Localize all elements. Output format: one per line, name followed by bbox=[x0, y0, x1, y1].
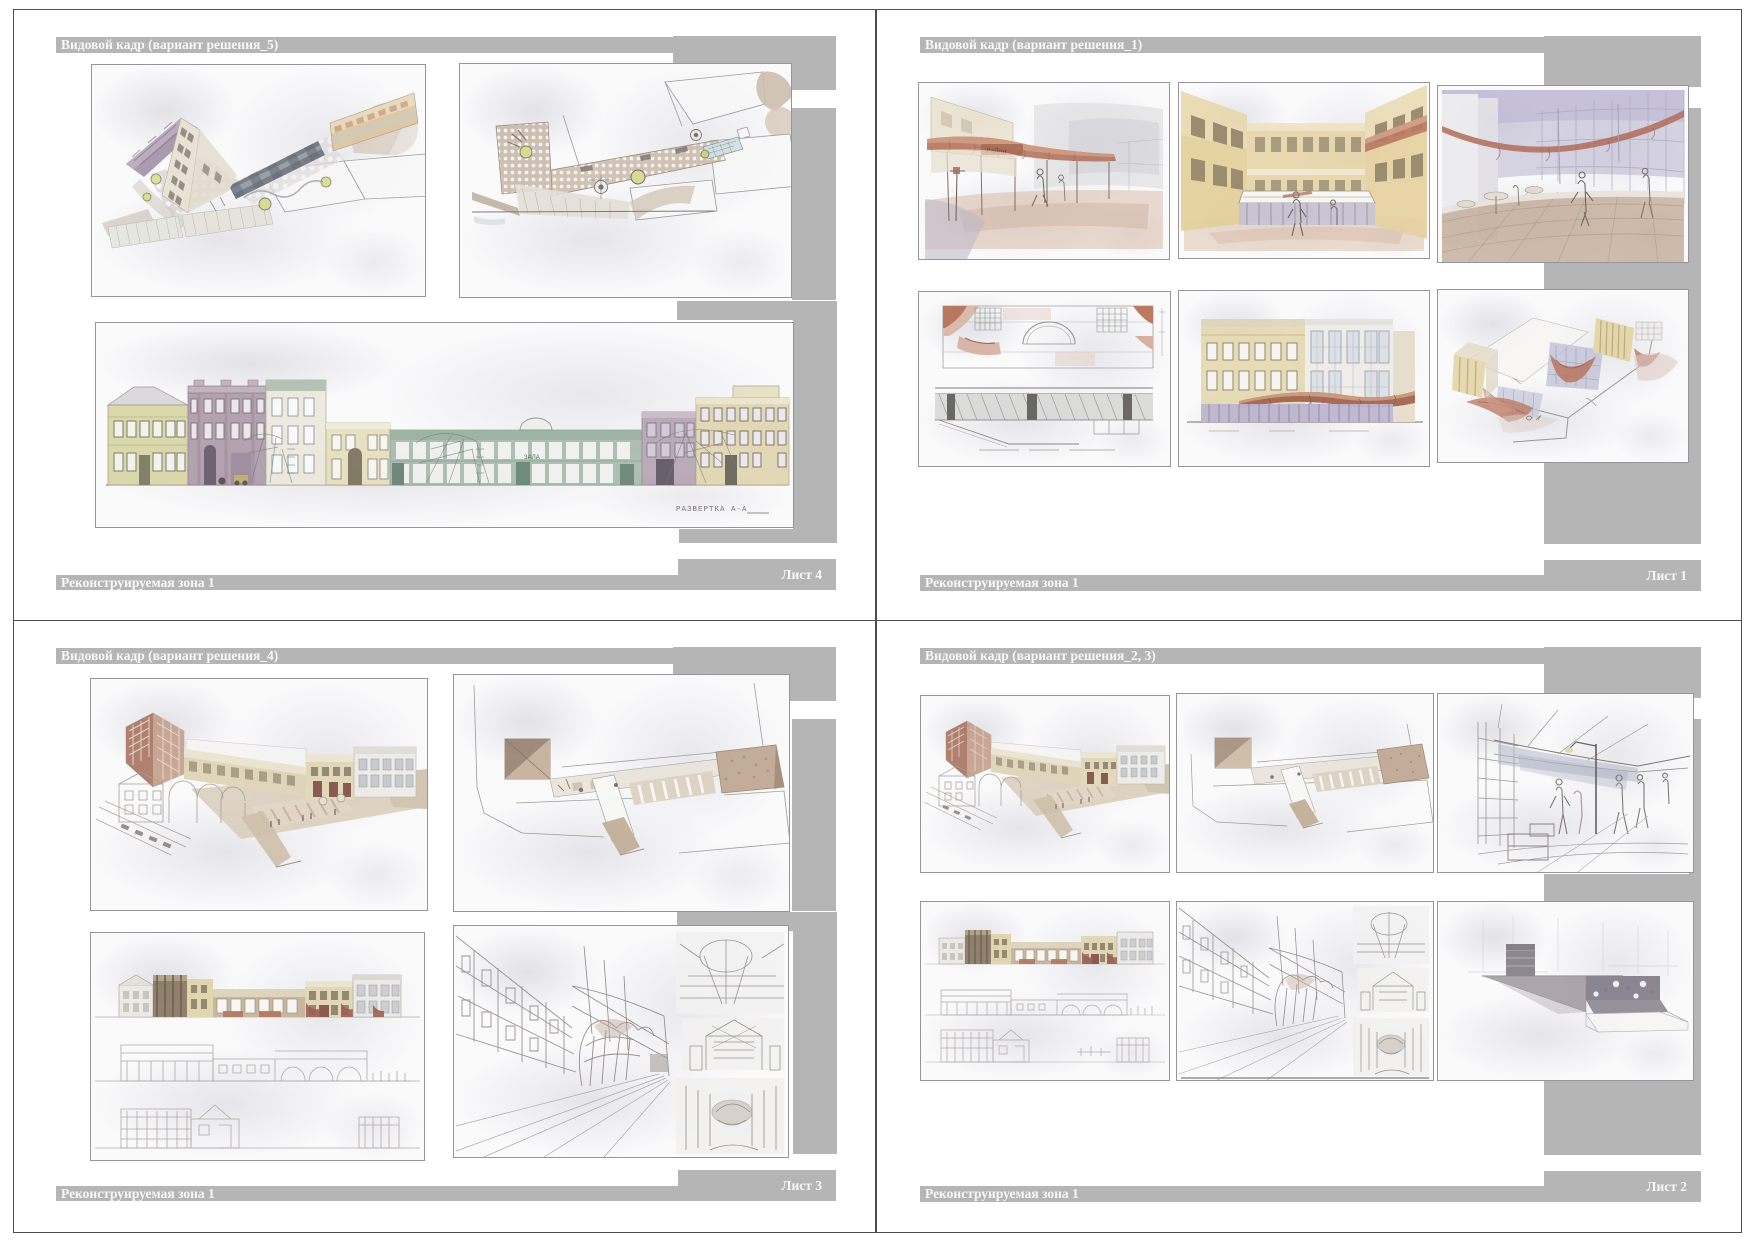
svg-text:ЗАЛА: ЗАЛА bbox=[524, 455, 540, 461]
svg-text:РАЗВЕРТКА А-А: РАЗВЕРТКА А-А bbox=[676, 506, 748, 514]
